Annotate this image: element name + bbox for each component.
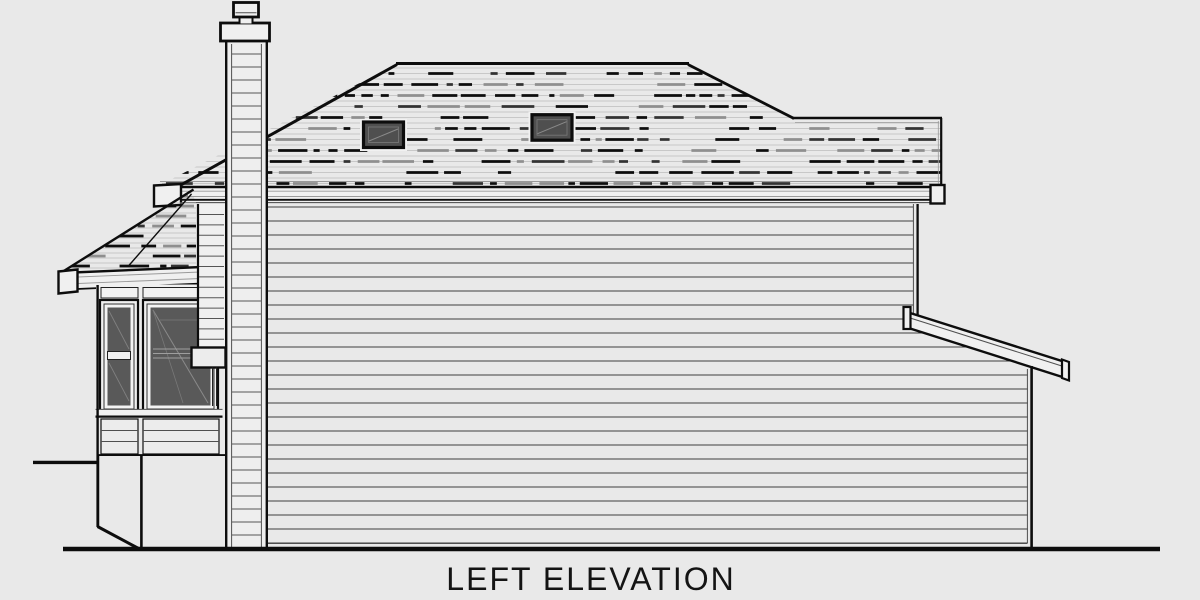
wall-surface <box>196 204 1028 548</box>
roof-fascia <box>154 184 945 207</box>
gutter-right-end-cap <box>931 185 945 204</box>
chimney-crown <box>221 23 270 41</box>
skylight-right <box>529 112 576 144</box>
bay-header-left <box>101 288 138 299</box>
bay-roof-ridge-line <box>63 190 194 272</box>
beam-right-cap <box>1062 360 1069 381</box>
window-mid-rail <box>108 352 131 360</box>
skylight-left <box>360 119 407 151</box>
bay-gutter-end-cap <box>59 270 78 294</box>
chase-body <box>197 204 225 348</box>
two-story-siding-wall <box>196 204 1028 548</box>
apron-panel-right <box>143 419 219 454</box>
apron-panel-left <box>101 419 138 454</box>
chimney-cap <box>234 3 259 18</box>
bay-window-left-sash <box>100 300 138 413</box>
beam-left-cap <box>904 307 911 329</box>
collector-box <box>192 348 226 368</box>
drawing-title: LEFT ELEVATION <box>0 561 1182 598</box>
elevation-drawing <box>0 0 1200 600</box>
bay-skirt <box>98 456 225 549</box>
single-story-section <box>1027 366 1031 550</box>
chimney <box>221 3 270 550</box>
